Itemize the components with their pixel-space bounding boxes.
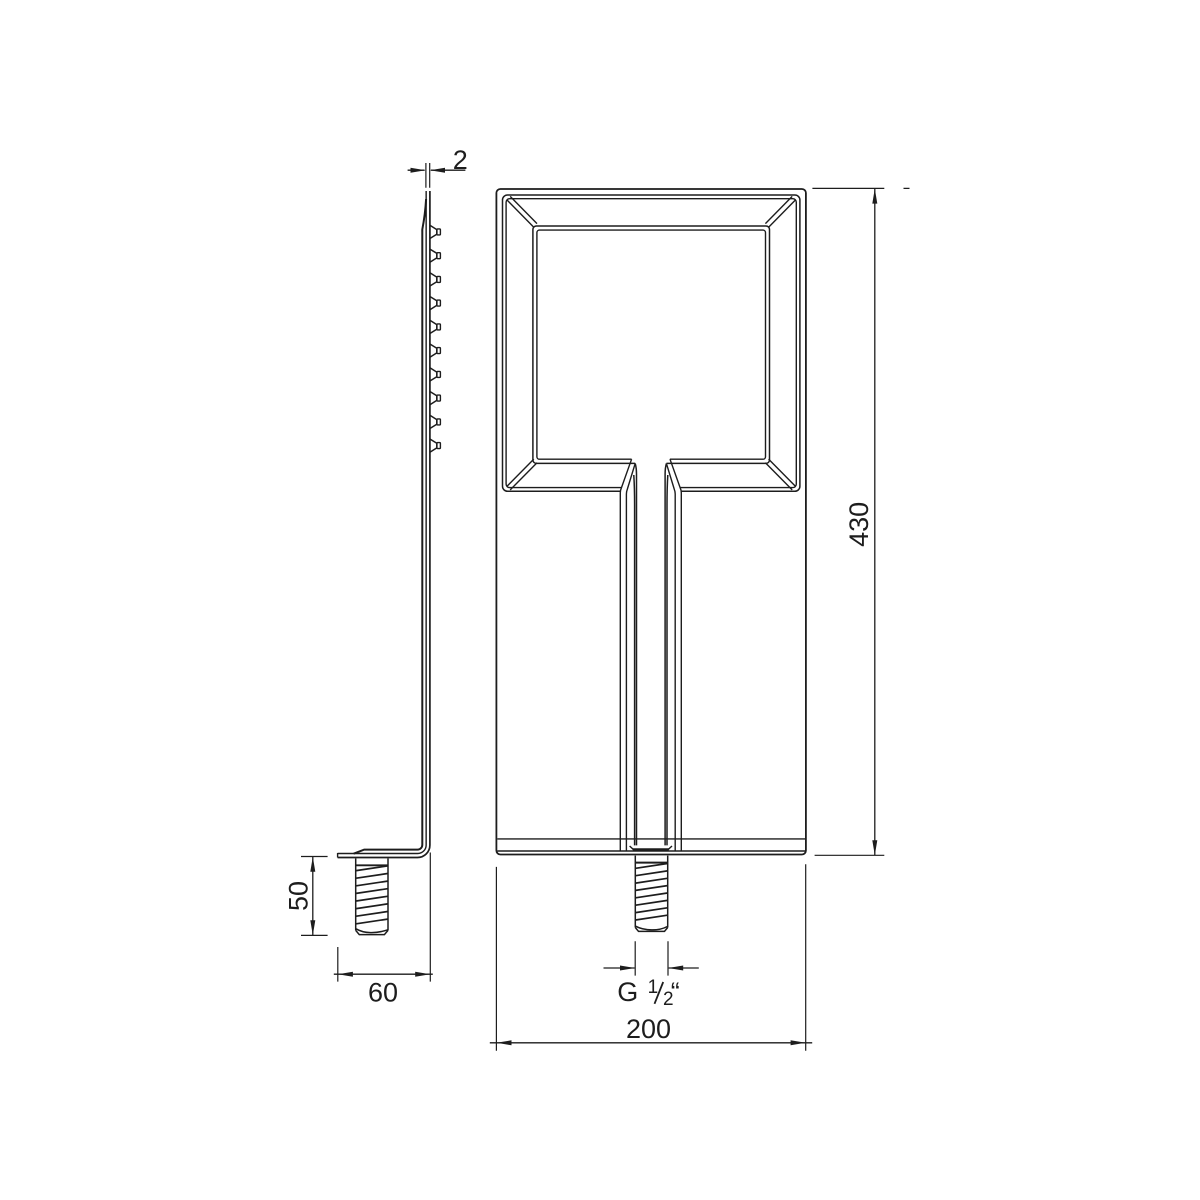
svg-text:60: 60	[368, 978, 398, 1008]
svg-text:200: 200	[626, 1014, 671, 1044]
svg-text:1: 1	[648, 977, 659, 998]
svg-text:50: 50	[284, 881, 314, 911]
svg-text:G: G	[617, 977, 638, 1007]
svg-text:430: 430	[844, 502, 874, 547]
svg-text:“: “	[671, 977, 680, 1007]
svg-text:2: 2	[453, 145, 468, 175]
